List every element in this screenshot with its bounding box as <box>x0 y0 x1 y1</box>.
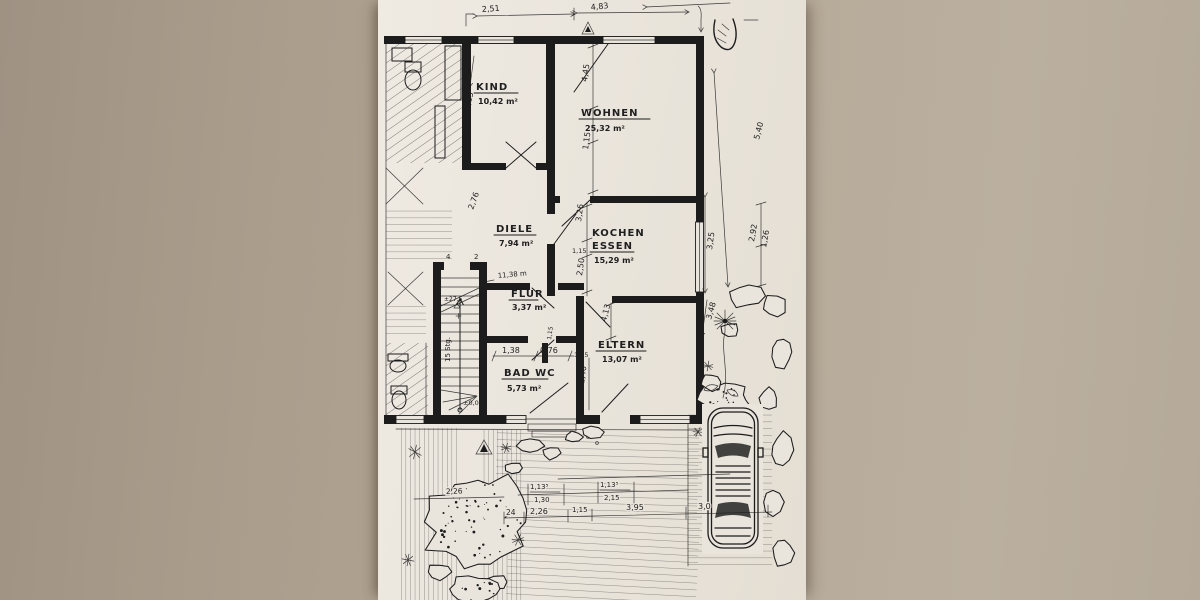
dim-bottom-226: 2,26 <box>530 507 548 516</box>
stair-level-label: ±0,00 <box>463 399 483 407</box>
dim-wohnen-445: 4,45 <box>580 63 591 82</box>
staircase: 15 Stg. ±0,00 ±27,5 4 2 <box>441 253 483 414</box>
window <box>396 416 424 424</box>
dim-eltern-413: 4,13 <box>599 303 612 322</box>
stair-mark-4: 4 <box>446 253 451 261</box>
dim-bottom-395: 3,95 <box>626 503 644 512</box>
dim-top-251: 2,51 <box>482 4 500 14</box>
window <box>603 37 655 44</box>
car <box>702 404 763 554</box>
stair-mark-2: 2 <box>474 253 478 261</box>
room-kind-area: 10,42 m² <box>478 97 518 106</box>
room-wohnen: WOHNEN 25,32 m² <box>579 108 650 133</box>
room-eltern-label: ELTERN <box>598 340 645 351</box>
note-flur-length: 11,38 m <box>497 269 527 280</box>
dim-bottom-130: 1,30 <box>534 496 550 504</box>
window <box>405 37 442 44</box>
dim-right-126: 1,26 <box>759 229 771 248</box>
room-flur: FLUR 3,37 m² <box>509 289 547 312</box>
dim-top-483: 4,83 <box>590 1 609 12</box>
dim-kochen-115: 1,15 <box>572 247 586 255</box>
room-flur-label: FLUR <box>511 289 544 300</box>
room-bad-area: 5,73 m² <box>507 384 542 393</box>
window <box>506 416 526 424</box>
room-bad-wc: BAD WC 5,73 m² <box>502 368 556 393</box>
room-diele-area: 7,94 m² <box>499 239 534 248</box>
room-kind: KIND 10,42 m² <box>474 82 518 106</box>
dim-bottom-115: 1,15 <box>572 506 588 514</box>
window <box>478 37 514 44</box>
dim-kochen-326: 3,26 <box>574 203 585 222</box>
dim-eltern-240: 2,40 <box>577 365 588 384</box>
room-wohnen-label: WOHNEN <box>581 108 638 119</box>
dim-right-540: 5,40 <box>752 121 765 140</box>
room-kochen-area: 15,29 m² <box>594 256 634 265</box>
window <box>696 222 704 292</box>
room-kind-label: KIND <box>476 82 508 93</box>
section-triangle-mark <box>582 22 594 34</box>
dim-bottom-215: 2,15 <box>604 494 620 502</box>
room-kochen-essen: KOCHEN ESSEN 15,29 m² <box>590 228 645 265</box>
dim-garden-226: 2,26 <box>446 486 463 496</box>
dim-bottom-1135a: 1,13⁵ <box>530 483 549 491</box>
dim-eltern-115: 1,15 <box>574 351 588 359</box>
dim-kochen-250: 2,50 <box>575 257 586 276</box>
floorplan-svg: 15 Stg. ±0,00 ±27,5 4 2 2,51 4,83 5,40 <box>378 0 806 600</box>
stair-riser-label: ±27,5 <box>444 296 463 303</box>
downspout-icon <box>714 19 758 50</box>
dim-bad-138: 1,38 <box>502 346 520 355</box>
dim-bad-115: 1,15 <box>546 326 555 340</box>
dim-bottom-30: 3,0 <box>698 502 711 511</box>
room-eltern: ELTERN 13,07 m² <box>596 340 646 364</box>
room-kochen-label: KOCHEN <box>592 228 645 239</box>
room-essen-label: ESSEN <box>592 241 633 252</box>
dim-wohnen-115: 1,15 <box>581 131 592 150</box>
window <box>640 416 690 424</box>
room-wohnen-area: 25,32 m² <box>585 124 625 133</box>
room-labels: KIND 10,42 m² WOHNEN 25,32 m² DIELE 7,94… <box>474 82 650 393</box>
stair-steps-label: 15 Stg. <box>444 337 452 362</box>
dim-bottom-24: 24 <box>506 508 516 517</box>
room-flur-area: 3,37 m² <box>512 303 547 312</box>
dim-right-325: 3,25 <box>705 231 716 250</box>
plan-paper: 15 Stg. ±0,00 ±27,5 4 2 2,51 4,83 5,40 <box>378 0 806 600</box>
dim-bottom-1135b: 1,13⁵ <box>600 481 619 489</box>
room-eltern-area: 13,07 m² <box>602 355 642 364</box>
room-diele-label: DIELE <box>496 224 533 235</box>
room-bad-label: BAD WC <box>504 368 556 379</box>
room-diele: DIELE 7,94 m² <box>494 224 536 248</box>
dim-bad-076: 0,76 <box>540 346 558 355</box>
dim-left-276: 2,76 <box>466 191 481 211</box>
dim-right-292: 2,92 <box>747 223 759 242</box>
